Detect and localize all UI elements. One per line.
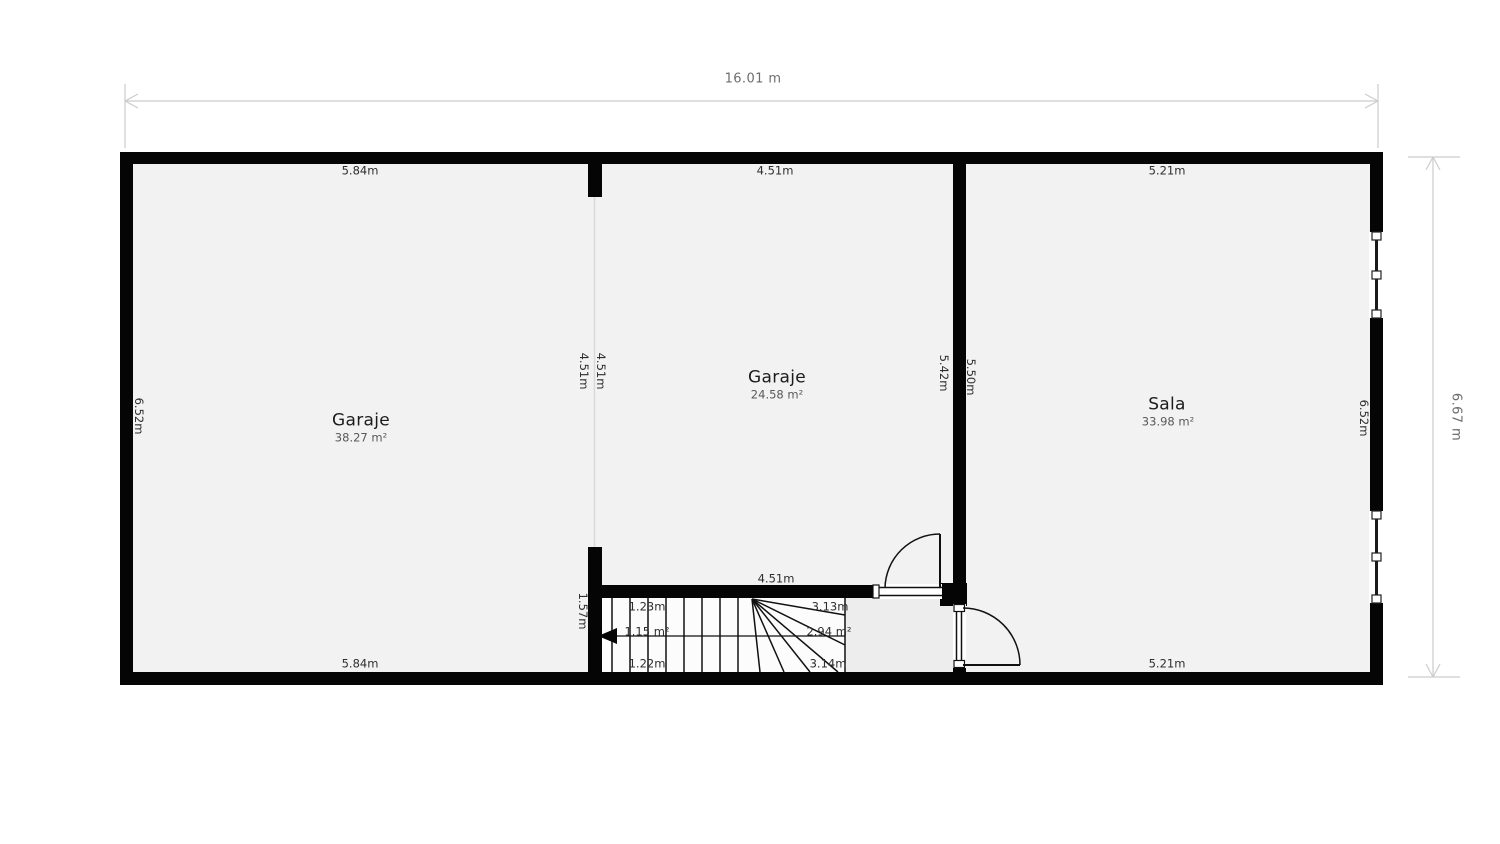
floor-plan-drawing <box>0 0 1500 844</box>
wall-stub-top-garages <box>588 164 602 197</box>
dim-sala-bottom: 5.21m <box>1149 658 1186 670</box>
wall-exterior-top <box>120 152 1383 164</box>
door-jamb-bottom <box>954 661 965 668</box>
dim-garage-mid-top: 4.51m <box>757 165 794 177</box>
room-area-sala: 33.98 m² <box>1142 416 1194 428</box>
dim-stairs-bottom-width: 1.22m <box>629 658 666 670</box>
dim-sala-right: 6.52m <box>1357 400 1369 437</box>
door-opening <box>953 604 966 668</box>
room-area-garage-mid: 24.58 m² <box>751 389 803 401</box>
dim-stairs-left: 1.57m <box>576 593 588 630</box>
dim-garage-left-left: 6.52m <box>132 398 144 435</box>
room-name-garage-left: Garaje <box>332 413 390 430</box>
window-sala-lower <box>1369 511 1384 603</box>
dim-stairs-right-bottom: 3.14m <box>810 658 847 670</box>
room-name-garage-mid: Garaje <box>748 370 806 387</box>
area-stairs-winder: 2.94 m² <box>806 626 851 638</box>
total-height-label: 6.67 m <box>1450 393 1463 441</box>
dimension-line-top <box>125 84 1378 148</box>
dim-stairs-right-top: 3.13m <box>812 601 849 613</box>
floor-plan-page: 16.01 m 6.67 m Garaje 38.27 m² 5.84m 5.8… <box>0 0 1500 844</box>
dim-garage-mid-left: 4.51m <box>594 353 606 390</box>
dim-sala-top: 5.21m <box>1149 165 1186 177</box>
dim-garage-mid-right: 5.42m <box>937 355 949 392</box>
dim-sala-left: 5.50m <box>964 359 976 396</box>
dim-garage-left-bottom: 5.84m <box>342 658 379 670</box>
hallway-floor <box>845 598 953 672</box>
door-jamb-top <box>954 605 965 612</box>
dim-garage-left-top: 5.84m <box>342 165 379 177</box>
dim-stairs-top-width: 1.23m <box>629 601 666 613</box>
wall-stair-left <box>588 547 602 672</box>
room-name-sala: Sala <box>1148 397 1186 414</box>
wall-exterior-bottom <box>120 672 1383 685</box>
dim-garage-mid-bottom: 4.51m <box>758 573 795 585</box>
area-stairs-lower-flight: 1.15 m² <box>624 626 669 638</box>
total-width-label: 16.01 m <box>725 73 782 86</box>
dim-garage-left-right: 4.51m <box>577 353 589 390</box>
room-area-garage-left: 38.27 m² <box>335 432 387 444</box>
wall-stair-top <box>602 585 873 598</box>
door-jamb-left <box>873 585 879 598</box>
window-sala-upper <box>1369 232 1384 318</box>
door-opening <box>876 584 942 599</box>
